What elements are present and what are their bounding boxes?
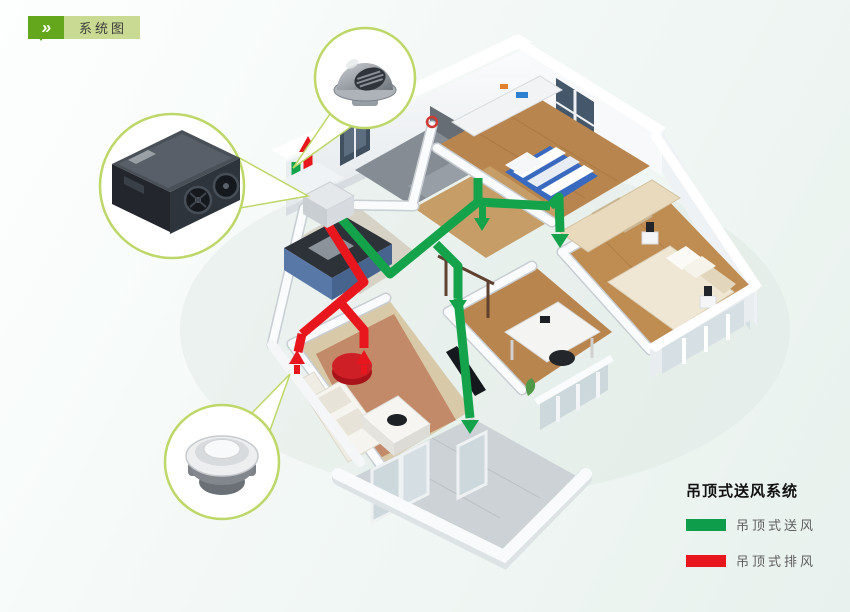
legend-label-exhaust: 吊顶式排风	[736, 551, 816, 570]
legend-row-supply: 吊顶式送风	[686, 515, 846, 534]
legend-label-supply: 吊顶式送风	[736, 515, 816, 534]
supply-swatch	[686, 519, 726, 531]
legend-row-exhaust: 吊顶式排风	[686, 551, 846, 570]
legend: 吊顶式送风系统 吊顶式送风 吊顶式排风	[686, 480, 846, 587]
page: » 系统图	[0, 0, 850, 612]
legend-title: 吊顶式送风系统	[686, 480, 846, 501]
exhaust-swatch	[686, 555, 726, 567]
